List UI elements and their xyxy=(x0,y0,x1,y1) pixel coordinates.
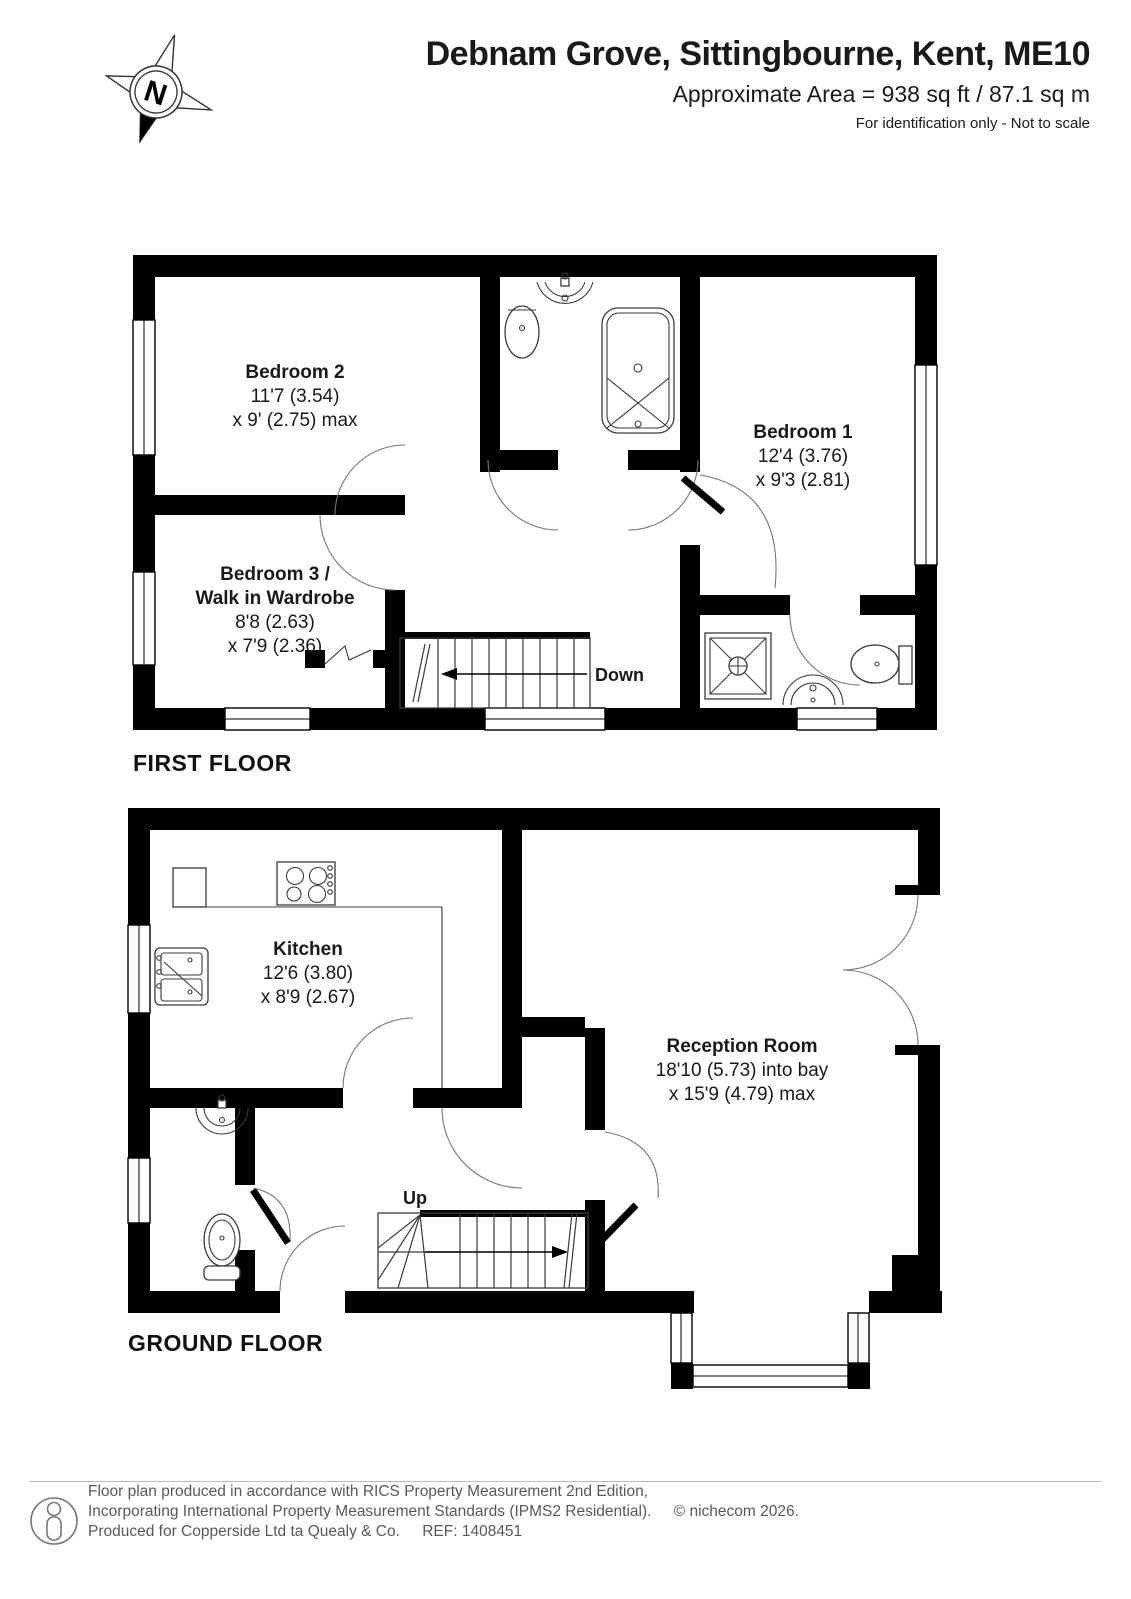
svg-text:18'10 (5.73) into bay: 18'10 (5.73) into bay xyxy=(656,1060,829,1081)
bathroom-fixtures xyxy=(505,273,674,433)
ensuite-fixtures xyxy=(705,633,912,705)
header: Debnam Grove, Sittingbourne, Kent, ME10 … xyxy=(426,36,1090,132)
stairs-up-label: Up xyxy=(403,1188,427,1208)
room-label-bedroom3: Bedroom 3 / xyxy=(220,564,331,585)
copyright: © nichecom 2026. xyxy=(674,1503,799,1520)
reference-number: REF: 1408451 xyxy=(422,1523,522,1540)
window-kitchen xyxy=(128,925,150,1013)
window-bedroom1 xyxy=(915,365,937,565)
svg-text:x 8'9 (2.67): x 8'9 (2.67) xyxy=(261,987,355,1008)
stairs-up: Up xyxy=(378,1188,588,1288)
window-bottom-1 xyxy=(225,708,310,730)
hob-icon xyxy=(277,862,335,905)
appliance xyxy=(173,868,206,907)
page-title: Debnam Grove, Sittingbourne, Kent, ME10 xyxy=(426,36,1090,73)
stairs-down-label: Down xyxy=(595,665,644,685)
svg-text:x 15'9 (4.79) max: x 15'9 (4.79) max xyxy=(669,1084,816,1105)
svg-text:x 9'3 (2.81): x 9'3 (2.81) xyxy=(756,470,850,491)
footer-line-3: Produced for Copperside Ltd ta Quealy & … xyxy=(88,1522,1028,1542)
floorplan-page: N Debnam Grove, Sittingbourne, Kent, ME1… xyxy=(0,0,1131,1599)
footer-line-2: Incorporating International Property Mea… xyxy=(88,1502,1028,1522)
toilet-icon xyxy=(505,306,539,358)
room-label-bedroom1: Bedroom 1 xyxy=(753,422,853,443)
window-bottom-2 xyxy=(485,708,605,730)
disclaimer: For identification only - Not to scale xyxy=(426,115,1090,132)
french-doors xyxy=(843,895,918,1045)
room-label-kitchen: Kitchen xyxy=(273,939,343,960)
footer: Floor plan produced in accordance with R… xyxy=(88,1482,1028,1542)
room-label-reception: Reception Room xyxy=(667,1036,818,1057)
wc-toilet-icon xyxy=(204,1214,240,1280)
ensuite-toilet-icon xyxy=(851,645,912,684)
approximate-area: Approximate Area = 938 sq ft / 87.1 sq m xyxy=(426,81,1090,108)
window-bedroom2 xyxy=(133,320,155,455)
svg-text:11'7 (3.54): 11'7 (3.54) xyxy=(251,386,340,407)
shower-icon xyxy=(705,633,771,699)
svg-text:8'8 (2.63): 8'8 (2.63) xyxy=(235,612,315,633)
svg-text:12'6 (3.80): 12'6 (3.80) xyxy=(263,963,353,984)
bathtub-icon xyxy=(602,308,674,433)
first-floor-plan: Down Bedroom 2 11'7 (3.54) x 9' (2.75) m… xyxy=(125,250,955,750)
window-wc xyxy=(128,1158,150,1223)
footer-line-1: Floor plan produced in accordance with R… xyxy=(88,1482,1028,1502)
sink-icon xyxy=(537,273,593,303)
svg-text:x 9' (2.75) max: x 9' (2.75) max xyxy=(232,410,358,431)
window-bottom-3 xyxy=(797,708,877,730)
svg-text:x 7'9 (2.36): x 7'9 (2.36) xyxy=(228,636,322,657)
first-floor-label: FIRST FLOOR xyxy=(133,750,292,777)
room-label-bedroom2: Bedroom 2 xyxy=(245,362,344,383)
compass-icon: N xyxy=(68,16,240,174)
ensuite-sink-icon xyxy=(783,675,843,705)
bay-window xyxy=(671,1313,869,1387)
ground-floor-walls xyxy=(128,808,942,1389)
window-bedroom3 xyxy=(133,572,155,665)
stairs-down: Down xyxy=(400,632,644,708)
svg-text:Walk in Wardrobe: Walk in Wardrobe xyxy=(195,588,354,609)
person-icon xyxy=(28,1492,80,1552)
bifold-door xyxy=(325,646,371,664)
kitchen-sink-icon xyxy=(155,948,208,1005)
svg-text:12'4 (3.76): 12'4 (3.76) xyxy=(758,446,848,467)
ground-floor-plan: Up Kitchen 12'6 (3.80) x 8'9 (2.67) Rece… xyxy=(120,800,960,1395)
ground-floor-label: GROUND FLOOR xyxy=(128,1330,323,1357)
